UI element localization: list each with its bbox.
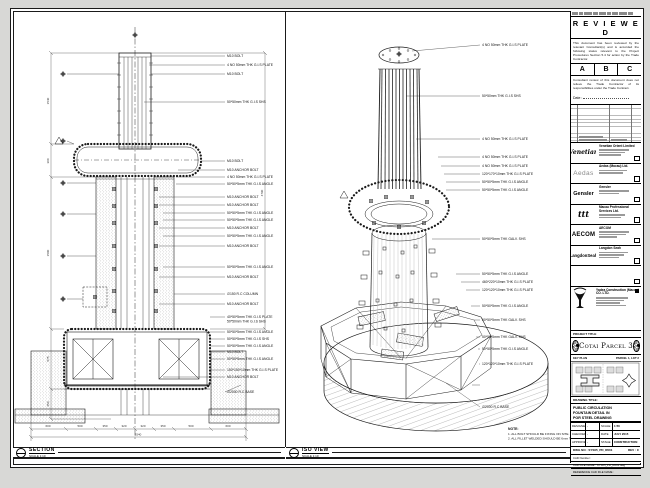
- consultant-checkbox[interactable]: [634, 156, 640, 162]
- reviewed-stamp-paragraph2: Consultant review of this document does …: [571, 76, 641, 92]
- reviewed-stamp-paragraph: This document has been reviewed by the r…: [571, 39, 641, 63]
- callout-label: 50*50*5mm THK G.I.S ANGLE: [227, 344, 274, 348]
- checked-value: -: [586, 431, 600, 439]
- callout-label: 50*50*5mm THK G.I.S ANGLE: [482, 347, 529, 351]
- revision-entry-mark: [611, 139, 627, 141]
- callout-label: M10 ANCHOR BOLT: [227, 375, 259, 379]
- consultant-checkbox[interactable]: [634, 279, 640, 285]
- callout-label: 50*50*5mm THK G.I.S ANGLE: [227, 330, 274, 334]
- revision-entry-mark: [579, 136, 603, 138]
- address-line: [599, 149, 629, 151]
- consultant-name: AECOM: [599, 227, 640, 231]
- callout-label: 150*150*10mm THK G.I.S PLATE: [227, 368, 279, 372]
- contractor-box: Yadea Construction (Macau) CO. LTD.: [571, 287, 641, 331]
- iso-view-title: ISO VIEW: [302, 447, 329, 453]
- callout-label: M10 ANCHOR BOLT: [227, 203, 259, 207]
- dim-label: 3540: [135, 433, 142, 437]
- gensler-logo: Gensler: [573, 191, 593, 197]
- address-line: [599, 172, 623, 174]
- address-line: [596, 300, 624, 302]
- consultant-name: Macau Professional Services Ltd.: [599, 206, 640, 213]
- callout-label: 50*50*5mm THK G.I.S ANGLE: [482, 272, 529, 276]
- date-label: DATE: [600, 431, 613, 439]
- callout-label: 4 NO 50mm THK G.I.S PLATE: [482, 43, 529, 47]
- contractor-name: Yadea Construction (Macau) CO. LTD.: [596, 289, 640, 296]
- callout-label: 50*50*5mm THK G.I.S ANGLE: [227, 265, 274, 269]
- status-abc-row: A B C: [571, 63, 641, 76]
- address-line: [599, 231, 629, 233]
- callout-label: 120*170*10mm THK G.I.S PLATE: [482, 172, 534, 176]
- consultant-box-aecom: AECOM AECOM: [571, 225, 641, 246]
- stamp-header-mark: [619, 12, 627, 15]
- iso-detail-marker-icon: [289, 448, 299, 458]
- consultant-box-aedas: Aedas Aedas (Macau) Ltd.: [571, 164, 641, 185]
- consultant-name: Gensler: [599, 186, 640, 190]
- dim-label: 320: [121, 424, 126, 428]
- dim-label: 4790: [260, 189, 264, 196]
- callout-label: 50*50*5mm THK G.I.S ANGLE: [482, 180, 529, 184]
- key-plan-label: KEY PLAN: [573, 356, 587, 360]
- designed-label: DESIGNED: [571, 423, 586, 431]
- drawing-sheet: 1540 300 1500 575 650 4790 600 500 350 3…: [10, 8, 644, 468]
- dim-label: 1540: [46, 97, 50, 104]
- iso-title-strip: ISO VIEW SCALE 1:10: [286, 447, 570, 459]
- callout-label: 50*50*5mm THK G.I.S ANGLE: [227, 182, 274, 186]
- dwg-no-label: DWG NO :: [573, 448, 588, 452]
- aedas-logo: Aedas: [573, 170, 593, 177]
- callout-label: ∅2000 R.C BASE: [227, 390, 255, 394]
- rev-label: REV :: [628, 448, 636, 452]
- dim-label: 350: [160, 424, 165, 428]
- dim-label: 320: [140, 424, 145, 428]
- consultant-name: Venetian Orient Limited: [599, 145, 640, 149]
- callout-label: 50*50*5mm THK G.I.S ANGLE: [227, 357, 274, 361]
- callout-label: 4 NO 50mm THK G.I.S PLATE: [227, 175, 274, 179]
- address-line: [599, 257, 619, 259]
- consultant-checkbox[interactable]: [634, 217, 640, 223]
- callout-label: ∅150 R.C COLUMN: [227, 292, 259, 296]
- dim-label: 300: [46, 158, 50, 163]
- dim-label: 350: [102, 424, 107, 428]
- callout-label: 4 NO 50mm THK G.I.S PLATE: [482, 137, 529, 141]
- consultant-name: Langdon Seah: [599, 247, 640, 251]
- drawing-title-line: POR STEEL DRAWING: [573, 416, 639, 421]
- date-value: JULY 2015: [613, 431, 640, 439]
- revision-entry-mark: [579, 139, 607, 141]
- langdonseah-logo: LangdonSeah: [571, 253, 597, 258]
- dwg-no-row: DWG NO : SYS05_PD_R001 REV : C: [571, 447, 641, 455]
- stamp-header-mark: [607, 12, 611, 15]
- dim-label: 500: [188, 424, 193, 428]
- callout-label: 50*50*5mm THK G.I.S ANGLE: [227, 211, 274, 215]
- callout-label: M10 BOLT: [227, 72, 243, 76]
- ref-cad-file-label: REFERENCE CAD FILE NAME :: [573, 470, 614, 474]
- consultant-box-venetian: Venetian Venetian Orient Limited: [571, 143, 641, 164]
- iso-note: NOTE: 1. ALL BOLT SHOULD BE FIXING ON SI…: [508, 427, 570, 441]
- project-title-label: PROJECT TITLE: [571, 331, 641, 338]
- stamp-header-mark: [593, 12, 598, 15]
- stamp-date-label: Date :: [573, 96, 582, 100]
- callout-label: 50*50mm THK G.I.S SHS: [482, 94, 521, 98]
- section-view-scale: SCALE 1:10: [29, 453, 55, 458]
- stage-label: STAGE: [600, 439, 613, 447]
- stamp-header-mark: [612, 12, 618, 15]
- signature-fields: DESIGNED - SCALE 1:50 CHECKED - DATE JUL…: [571, 422, 641, 447]
- mps-logo: ttt: [578, 209, 589, 219]
- cad-file-label: CAD FILE NAME :: [573, 463, 596, 467]
- dim-label: 650: [46, 401, 50, 406]
- callout-label: M10 ANCHOR BOLT: [227, 226, 259, 230]
- revision-table-divider: [577, 105, 578, 142]
- callout-label: 4 NO 50mm THK G.I.S PLATE: [482, 155, 529, 159]
- approved-value: -: [586, 439, 600, 447]
- callout-label: 50*50*5mm THK GALV. SHS: [482, 318, 526, 322]
- status-option-b[interactable]: B: [595, 64, 619, 75]
- callout-label: 50*50*5mm THK G.I.S ANGLE: [227, 218, 274, 222]
- revision-table: [571, 105, 641, 143]
- status-option-a[interactable]: A: [571, 64, 595, 75]
- callout-label: 40*50*5mm THK G.I.S PLATE: [227, 315, 273, 319]
- iso-view-scale: SCALE 1:10: [302, 453, 329, 458]
- status-option-c[interactable]: C: [618, 64, 641, 75]
- revision-table-divider: [631, 105, 632, 142]
- strip-rule: [332, 452, 566, 453]
- key-plan: KEY PLAN PARCEL 1, LOT 2: [571, 355, 641, 397]
- address-line: [599, 170, 627, 172]
- consultant-box-langdonseah: LangdonSeah Langdon Seah: [571, 246, 641, 267]
- callout-label: 4 NO 50mm THK G.I.S PLATE: [482, 164, 529, 168]
- consultant-box-empty: [571, 266, 641, 287]
- medallion-icon: [572, 340, 579, 352]
- address-line: [599, 152, 625, 154]
- dim-label: 600: [45, 424, 50, 428]
- address-line: [596, 297, 628, 299]
- project-title: Cotai Parcel 3: [579, 342, 633, 350]
- section-callouts: M10 BOLT 4 NO 50mm THK G.I.S PLATE M10 B…: [227, 54, 279, 394]
- address-line: [599, 193, 619, 195]
- contractor-mark: [635, 289, 639, 293]
- consultant-name: Aedas (Macau) Ltd.: [599, 165, 640, 169]
- stamp-date-row: Date :: [571, 92, 641, 104]
- stamp-header-mark: [628, 12, 633, 15]
- callout-label: M10 ANCHOR BOLT: [227, 244, 259, 248]
- callout-label: 50*50*5mm THK G.I.S ANGLE: [482, 188, 529, 192]
- designed-value: -: [586, 423, 600, 431]
- address-line: [599, 217, 621, 219]
- section-view-title: SECTION: [29, 447, 55, 453]
- consultant-box-gensler: Gensler Gensler: [571, 184, 641, 205]
- scale-label: SCALE: [600, 423, 613, 431]
- note-line: 2. ALL FILLET WELDED SHOULD BE 6mm THK.: [508, 437, 570, 441]
- cad-number-label: CAD Number :: [573, 456, 591, 460]
- stamp-header-mark: [572, 12, 578, 15]
- callout-label: 50*50mm THK G.I.S SHS: [227, 100, 266, 104]
- key-plan-parcel: PARCEL 1, LOT 2: [616, 356, 639, 360]
- note-line: 1. ALL BOLT SHOULD BE FIXING ON SITE.: [508, 432, 569, 436]
- dwg-no-value: SYS05_PD_R001: [588, 448, 612, 452]
- callout-label: 50*50*5mm THK G.I.S ANGLE: [227, 234, 274, 238]
- address-line: [599, 236, 617, 238]
- stamp-header-mark: [584, 12, 592, 15]
- address-line: [596, 302, 620, 304]
- callout-label: 4 NO 50mm THK G.I.S PLATE: [227, 63, 274, 67]
- venetian-logo: Venetian: [571, 149, 597, 156]
- reviewed-stamp: R E V I E W E D This document has been r…: [571, 17, 641, 105]
- consultant-checkbox[interactable]: [634, 238, 640, 244]
- checked-label: CHECKED: [571, 431, 586, 439]
- callout-label: M10 ANCHOR BOLT: [227, 275, 259, 279]
- revision-table-divider: [609, 105, 610, 142]
- consultant-checkbox[interactable]: [634, 176, 640, 182]
- callout-label: M10 BOLT: [227, 159, 243, 163]
- consultant-checkbox[interactable]: [634, 197, 640, 203]
- key-plan-drawing: [571, 362, 640, 396]
- cad-number-row: CAD Number :: [571, 455, 641, 462]
- address-line: [599, 154, 621, 156]
- stamp-header-mark: [579, 12, 583, 15]
- section-title-strip: SECTION SCALE 1:10: [13, 447, 285, 459]
- address-line: [599, 254, 624, 256]
- ref-cad-file-row: REFERENCE CAD FILE NAME :: [571, 469, 641, 476]
- address-line: [599, 190, 629, 192]
- stage-value: CONSTRUCTION: [613, 439, 640, 447]
- callout-label: 120*120*10mm THK G.I.S PLATE: [482, 362, 534, 366]
- dim-label: 500: [77, 424, 82, 428]
- callout-label: M10 BOLT: [227, 54, 243, 58]
- stamp-date-blank[interactable]: [583, 94, 629, 99]
- scale-value: 1:50: [613, 423, 640, 431]
- callout-label: M10 ANCHOR BOLT: [227, 195, 259, 199]
- rev-value: C: [637, 448, 639, 452]
- address-line: [599, 214, 625, 216]
- consultant-checkbox[interactable]: [634, 258, 640, 264]
- section-drawing: 1540 300 1500 575 650 4790 600 500 350 3…: [13, 11, 285, 447]
- reviewed-stamp-title: R E V I E W E D: [571, 17, 641, 39]
- drawing-title: PUBLIC CIRCULATION FOUNTAIN DETAIL IN PO…: [571, 404, 641, 422]
- callout-label: M10 ANCHOR BOLT: [227, 302, 259, 306]
- callout-label: 50*50*5mm THK GALV. SHS: [482, 237, 526, 241]
- dim-label: 575: [46, 356, 50, 361]
- yadea-logo-icon: [571, 287, 589, 311]
- drawing-title-label: DRAWING TITLE:: [571, 397, 641, 404]
- callout-label: ∅2000 R.C BASE: [482, 405, 510, 409]
- address-line: [596, 305, 626, 307]
- stamp-header-mark: [599, 12, 606, 15]
- project-title-band: Cotai Parcel 3: [571, 338, 641, 355]
- cad-sheet-screenshot: { "left_view": { "title": "SECTION", "sc…: [0, 0, 650, 488]
- approved-label: APPROVED: [571, 439, 586, 447]
- callout-label: 50*50*5mm THK G.I.S ANGLE: [482, 304, 529, 308]
- title-block: R E V I E W E D This document has been r…: [570, 11, 641, 463]
- medallion-icon: [633, 340, 640, 352]
- callout-label: 120*120*10mm THK G.I.S PLATE: [482, 288, 534, 292]
- section-detail-marker-icon: [16, 448, 26, 458]
- address-line: [599, 252, 628, 254]
- cad-file-row: CAD FILE NAME : SYS05_PD_R001.dwg: [571, 462, 641, 469]
- aecom-logo: AECOM: [572, 232, 595, 238]
- callout-label: 50*50*5mm THK G.I.S SHS: [227, 337, 270, 341]
- callout-label: 50*50mm THK G.I.S SHS: [227, 320, 266, 324]
- iso-drawing: 4 NO 50mm THK G.I.S PLATE 50*50mm THK G.…: [286, 11, 570, 447]
- cad-file-value: SYS05_PD_R001.dwg: [597, 463, 625, 467]
- address-line: [599, 234, 626, 236]
- callout-label: 460*220*10mm THK G.I.S PLATE: [482, 280, 534, 284]
- callout-label: M10 BOLT: [227, 350, 243, 354]
- note-title: NOTE:: [508, 427, 519, 431]
- callout-label: 50*50*5mm THK GALV. SHS: [482, 335, 526, 339]
- strip-rule: [58, 452, 281, 453]
- drawing-views: 1540 300 1500 575 650 4790 600 500 350 3…: [13, 11, 570, 463]
- dim-label: 1500: [46, 249, 50, 256]
- dim-label: 600: [225, 424, 230, 428]
- callout-label: M10 ANCHOR BOLT: [227, 168, 259, 172]
- consultant-box-mps: ttt Macau Professional Services Ltd.: [571, 205, 641, 226]
